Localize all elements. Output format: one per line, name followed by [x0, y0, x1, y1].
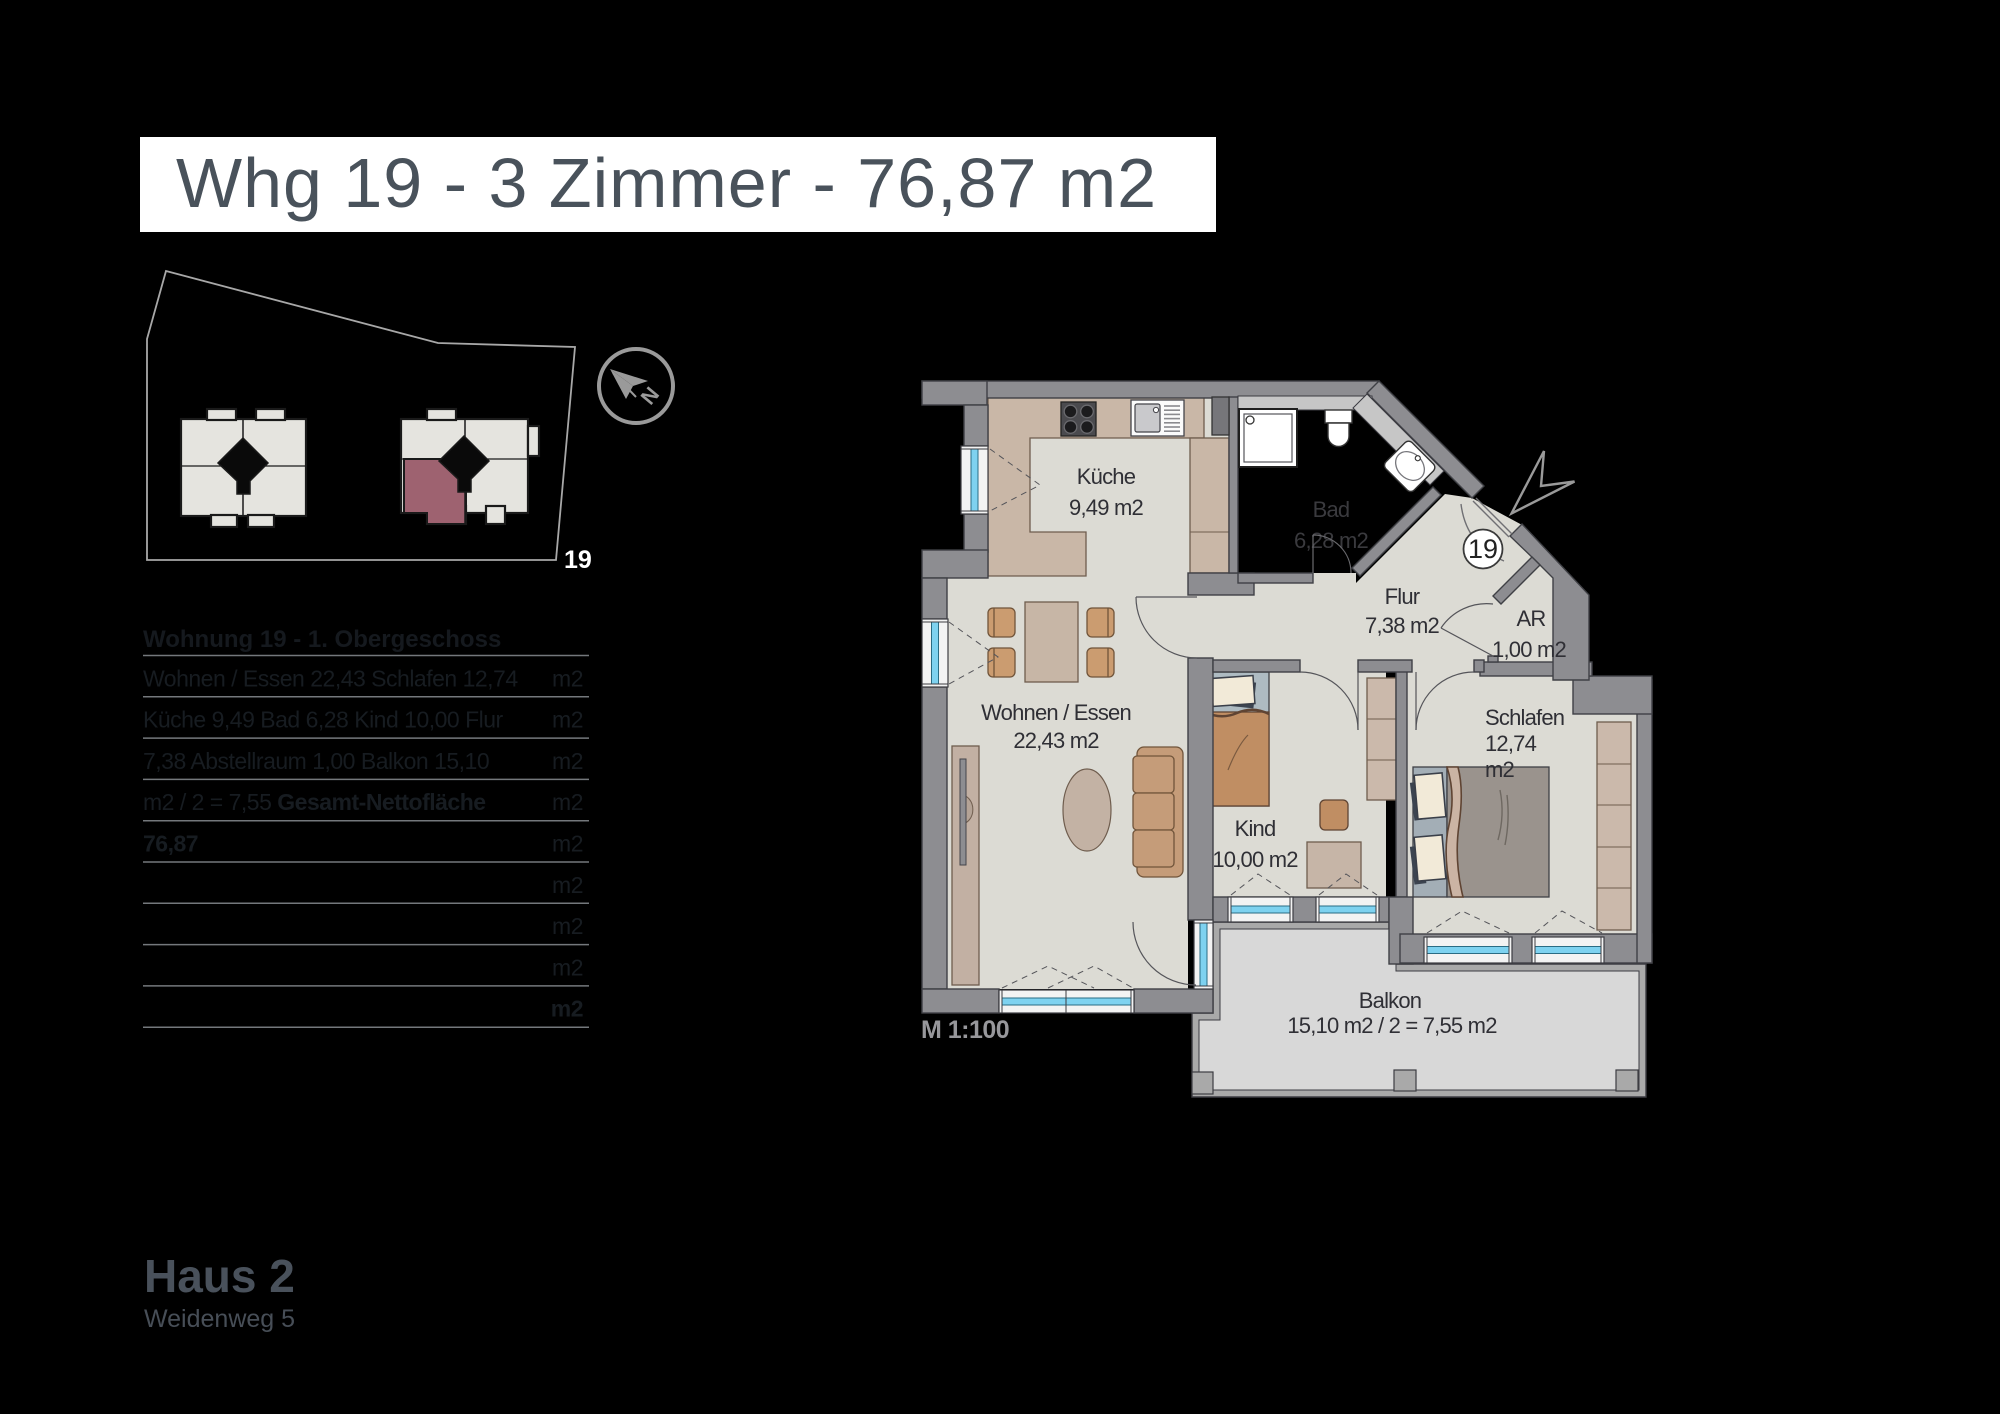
svg-text:m2: m2 — [552, 872, 583, 898]
svg-text:Haus 2: Haus 2 — [144, 1250, 295, 1302]
svg-text:Balkon: Balkon — [1359, 988, 1421, 1013]
svg-text:m2: m2 — [552, 748, 583, 774]
svg-text:10,00 m2: 10,00 m2 — [1212, 847, 1298, 872]
svg-text:Wohnen / Essen 22,43 Schlafen: Wohnen / Essen 22,43 Schlafen 12,74 — [143, 665, 518, 691]
svg-text:Flur: Flur — [1385, 584, 1420, 609]
svg-text:12,74: 12,74 — [1485, 731, 1537, 756]
svg-text:M 1:100: M 1:100 — [921, 1016, 1009, 1044]
svg-text:Kind: Kind — [1235, 816, 1276, 841]
svg-text:m2: m2 — [552, 831, 583, 857]
svg-text:Whg 19 - 3 Zimmer - 76,87 m2: Whg 19 - 3 Zimmer - 76,87 m2 — [176, 144, 1157, 222]
svg-text:Küche: Küche — [1077, 464, 1136, 489]
svg-text:19: 19 — [564, 546, 592, 574]
svg-text:Wohnen / Essen: Wohnen / Essen — [981, 700, 1131, 725]
svg-text:Weidenweg 5: Weidenweg 5 — [144, 1305, 295, 1333]
svg-text:9,49 m2: 9,49 m2 — [1069, 495, 1143, 520]
svg-text:m2 / 2 = 7,55 Gesamt-Netto: m2 / 2 = 7,55 Gesamt-Nettofläche — [143, 789, 486, 815]
svg-text:15,10 m2 / 2 = 7,55 m2: 15,10 m2 / 2 = 7,55 m2 — [1287, 1013, 1497, 1038]
svg-text:7,38 Abstellraum 1,00 Balko: 7,38 Abstellraum 1,00 Balkon 15,10 — [143, 748, 489, 774]
svg-text:AR: AR — [1517, 606, 1546, 631]
svg-text:76,87: 76,87 — [143, 831, 198, 857]
svg-text:m2: m2 — [552, 954, 583, 980]
svg-text:19: 19 — [1468, 534, 1498, 564]
svg-text:Küche 9,49 Bad 6,28 Kind: Küche 9,49 Bad 6,28 Kind 10,00 Flur — [143, 707, 504, 733]
svg-text:Schlafen: Schlafen — [1485, 705, 1564, 730]
svg-text:22,43 m2: 22,43 m2 — [1013, 728, 1099, 753]
svg-text:Wohnung 19 - 1. Obergeschoss: Wohnung 19 - 1. Obergeschoss — [143, 626, 501, 653]
svg-text:m2: m2 — [552, 665, 583, 691]
svg-text:m2: m2 — [552, 913, 583, 939]
svg-text:m2: m2 — [1485, 757, 1515, 782]
svg-text:7,38 m2: 7,38 m2 — [1365, 613, 1439, 638]
svg-text:m2: m2 — [551, 996, 583, 1022]
svg-text:6,28 m2: 6,28 m2 — [1294, 528, 1368, 553]
svg-text:1,00 m2: 1,00 m2 — [1492, 637, 1566, 662]
svg-text:m2: m2 — [552, 707, 583, 733]
svg-text:Bad: Bad — [1313, 497, 1350, 522]
svg-text:m2: m2 — [552, 789, 583, 815]
